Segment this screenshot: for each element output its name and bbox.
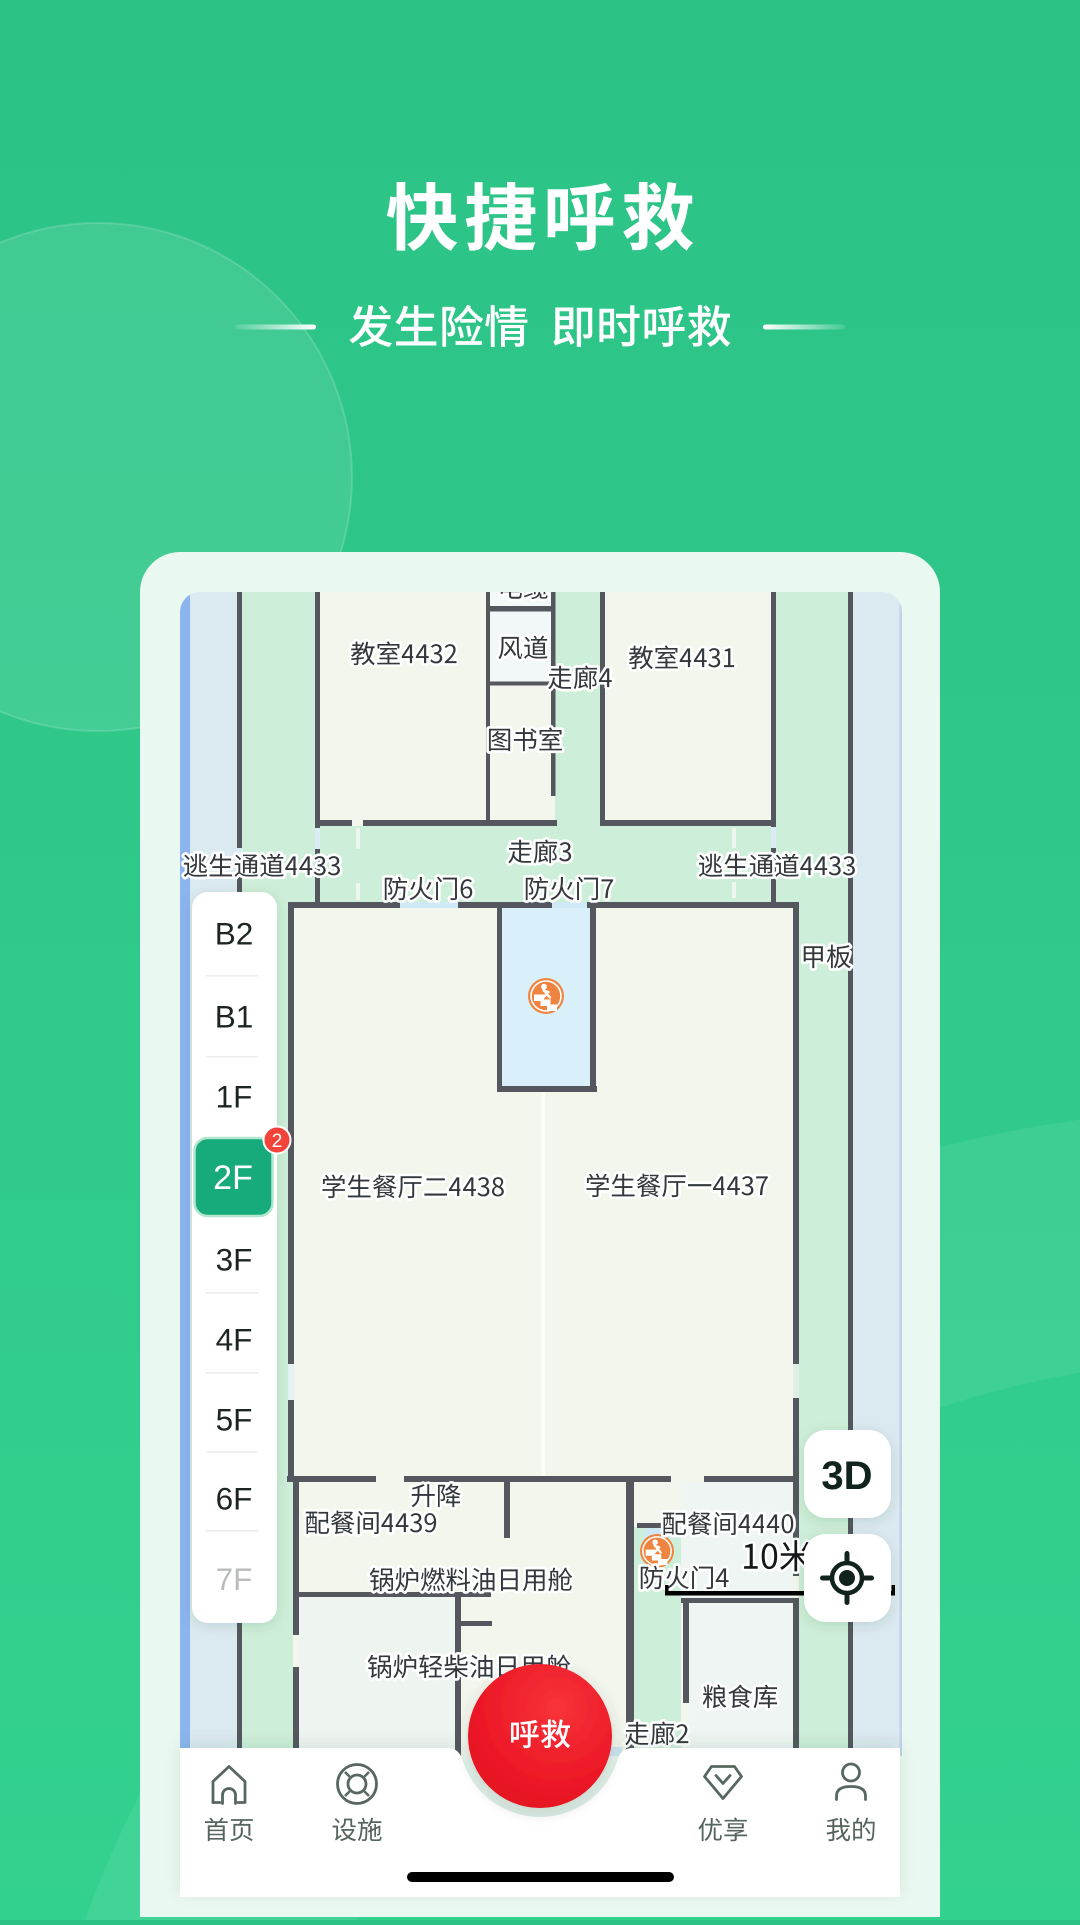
svg-text:3F: 3F	[216, 1242, 253, 1278]
svg-text:2: 2	[272, 1131, 283, 1152]
svg-text:7F: 7F	[216, 1561, 253, 1597]
svg-text:B1: B1	[215, 999, 254, 1035]
svg-text:5F: 5F	[216, 1402, 253, 1438]
svg-text:3D: 3D	[821, 1454, 872, 1498]
svg-text:2F: 2F	[213, 1159, 253, 1197]
svg-text:1F: 1F	[216, 1079, 253, 1115]
svg-text:6F: 6F	[216, 1481, 253, 1517]
svg-text:B2: B2	[215, 916, 254, 952]
svg-text:4F: 4F	[216, 1322, 253, 1358]
